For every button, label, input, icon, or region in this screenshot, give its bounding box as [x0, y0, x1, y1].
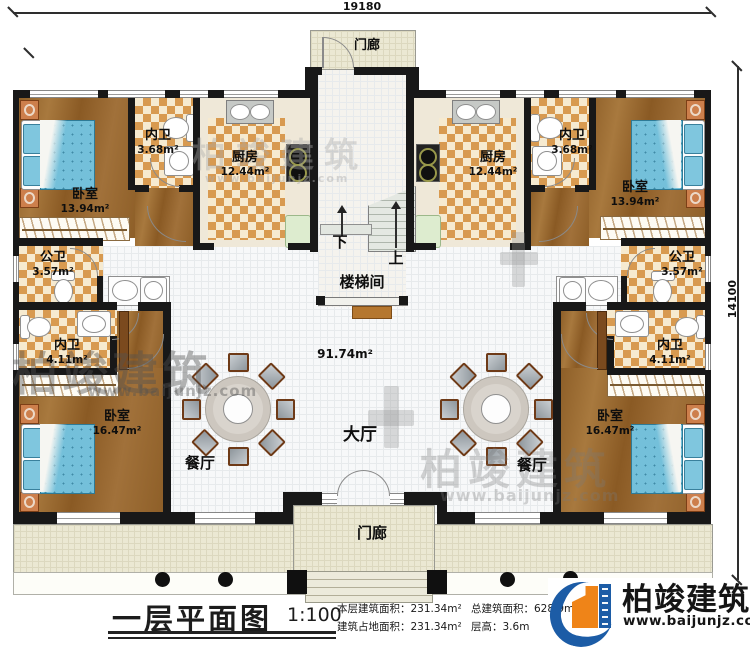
toilet-icon [653, 279, 672, 304]
watermark-logo-icon [500, 252, 538, 265]
stair-hall-floor [318, 67, 406, 307]
room-label-bedroom-bottom-right: 卧室 16.47m² [570, 410, 650, 437]
room-label-bath-public-left: 公卫 3.57m² [23, 251, 83, 278]
kitchen-left-floor [208, 118, 285, 240]
wall [437, 492, 447, 524]
window [705, 344, 711, 370]
room-label-dining-left: 餐厅 [172, 455, 228, 472]
wall [575, 185, 589, 192]
wall [553, 302, 561, 514]
wall [414, 243, 436, 250]
stat-floor-area: 本层建筑面积：231.34m² [337, 601, 462, 616]
stairs-up-arrowhead [391, 196, 401, 209]
room-area: 12.44m² [453, 166, 533, 178]
room-area: 16.47m² [77, 425, 157, 437]
room-label-bath-public-right: 公卫 3.57m² [652, 251, 712, 278]
dining-chair [228, 353, 249, 372]
room-name: 餐厅 [172, 455, 228, 472]
washer-drum-icon [563, 281, 582, 300]
wall [667, 512, 711, 524]
rail-post [316, 296, 325, 305]
dining-table-top [481, 394, 511, 424]
entry-steps [305, 571, 433, 603]
porch-column [427, 570, 447, 594]
room-area: 12.44m² [205, 166, 285, 178]
porch-column-dot [155, 572, 170, 587]
room-area: 3.57m² [23, 266, 83, 278]
wall [13, 302, 117, 310]
room-name: 卧室 [45, 188, 125, 203]
nightstand [686, 492, 705, 512]
wall [531, 185, 545, 192]
window [224, 90, 278, 98]
wall [621, 238, 711, 246]
burner-icon [289, 164, 307, 182]
dimension-height-label: 14100 [726, 280, 739, 318]
wall [13, 368, 117, 375]
room-label-hall: 大厅 [330, 426, 390, 446]
wall [607, 368, 711, 375]
room-label-ensuite-top-left: 内卫 3.68m² [128, 129, 188, 156]
stat-value: 231.34m² [411, 603, 462, 615]
room-label-bedroom-top-left: 卧室 13.94m² [45, 188, 125, 215]
stat-label: 本层建筑面积： [337, 603, 411, 615]
room-label-bedroom-top-right: 卧室 13.94m² [595, 181, 675, 208]
dimension-line-right [737, 66, 739, 580]
room-name: 内卫 [542, 129, 602, 144]
wall [621, 276, 627, 304]
wall [110, 336, 117, 371]
room-name: 厨房 [205, 151, 285, 166]
wall [13, 238, 103, 246]
rail-post [399, 296, 408, 305]
window [516, 90, 544, 98]
brand-url: www.baijunjz.com [623, 613, 750, 629]
nightstand [20, 404, 39, 424]
window [626, 90, 694, 98]
wall [135, 185, 149, 192]
stat-value: 3.6m [503, 621, 530, 633]
pillow [684, 460, 703, 490]
wall [120, 512, 195, 524]
room-area: 4.11m² [37, 354, 97, 366]
porch-column-dot [500, 572, 515, 587]
dining-table-top [223, 394, 253, 424]
room-name: 内卫 [640, 339, 700, 354]
window-sidelight [322, 493, 337, 504]
room-label-stairwell: 楼梯间 [322, 274, 402, 291]
watermark-logo-icon [368, 410, 414, 426]
vanity-sink-icon [588, 280, 614, 301]
nightstand [686, 100, 705, 120]
room-name: 公卫 [652, 251, 712, 266]
stat-label: 层高： [471, 621, 503, 633]
room-name: 内卫 [37, 339, 97, 354]
room-label-kitchen-left: 厨房 12.44m² [205, 151, 285, 178]
wall [288, 243, 310, 250]
room-name: 公卫 [23, 251, 83, 266]
toilet-icon [27, 317, 51, 337]
floor-plan-canvas: 门廊 卧室 13.94m² 内卫 3.68m² 厨房 12.44m² 公卫 3.… [0, 0, 750, 648]
stat-height: 层高：3.6m [471, 619, 529, 634]
wall [310, 75, 318, 252]
room-area: 13.94m² [45, 203, 125, 215]
wall [179, 185, 193, 192]
nightstand [686, 188, 705, 208]
room-name: 门廊 [322, 39, 412, 54]
bed-sheet [631, 120, 681, 188]
room-area: 3.68m² [542, 144, 602, 156]
window [195, 512, 255, 524]
wall [13, 512, 57, 524]
kitchen-sink-bowl [476, 104, 496, 120]
window [57, 512, 120, 524]
room-name: 餐厅 [504, 457, 560, 474]
room-area: 4.11m² [640, 354, 700, 366]
room-label-porch-bottom: 门廊 [330, 525, 414, 542]
room-name: 卧室 [77, 410, 157, 425]
dining-chair [228, 447, 249, 466]
title-underline [108, 631, 336, 634]
title-underline-thin [108, 637, 336, 639]
window [108, 90, 165, 98]
nightstand [20, 188, 39, 208]
stat-label: 建筑占地面积： [337, 621, 411, 633]
wall [540, 512, 604, 524]
wardrobe-top-right [600, 216, 707, 240]
room-name: 内卫 [128, 129, 188, 144]
stairs-up-text: 上 [386, 250, 406, 267]
door-leaf [597, 311, 607, 370]
porch-column [287, 570, 307, 594]
room-name: 楼梯间 [322, 274, 402, 291]
wall [607, 336, 614, 371]
scale-label: 1:100 [287, 604, 342, 626]
dining-chair [440, 399, 459, 420]
vanity-sink-icon [112, 280, 138, 301]
nightstand [20, 100, 39, 120]
dimension-width-label: 19180 [317, 0, 407, 13]
dining-chair [276, 399, 295, 420]
room-label-ensuite-bottom-right: 内卫 4.11m² [640, 339, 700, 366]
room-area: 3.68m² [128, 144, 188, 156]
washer-drum-icon [144, 281, 163, 300]
porch-column-dot [218, 572, 233, 587]
room-name: 卧室 [595, 181, 675, 196]
stat-label: 总建筑面积： [471, 603, 534, 615]
kitchen-sink-bowl [250, 104, 270, 120]
stairs-down-label: 下 [330, 234, 350, 251]
room-name: 大厅 [330, 426, 390, 446]
dining-chair [182, 399, 201, 420]
pillow [684, 156, 703, 186]
room-label-kitchen-right: 厨房 12.44m² [453, 151, 533, 178]
burner-icon [419, 164, 437, 182]
wall [97, 276, 103, 304]
room-label-dining-right: 餐厅 [504, 457, 560, 474]
room-label-porch-top: 门廊 [322, 39, 412, 54]
room-name: 厨房 [453, 151, 533, 166]
toilet-icon [54, 279, 73, 304]
nightstand [686, 404, 705, 424]
window [13, 344, 19, 370]
window [180, 90, 208, 98]
stair-hall-rail [318, 297, 408, 306]
window [13, 256, 19, 282]
room-label-ensuite-top-right: 内卫 3.68m² [542, 129, 602, 156]
kitchen-right-floor [439, 118, 516, 240]
wall [200, 243, 214, 250]
stairs-down-text: 下 [330, 234, 350, 251]
bed-sheet [40, 120, 93, 188]
wall [283, 492, 293, 524]
stairs-up-arrow [395, 206, 397, 248]
room-label-ensuite-bottom-left: 内卫 4.11m² [37, 339, 97, 366]
toilet-icon [675, 317, 699, 337]
room-area: 13.94m² [595, 196, 675, 208]
pillow [684, 124, 703, 154]
room-area: 3.57m² [652, 266, 712, 278]
pillow [684, 428, 703, 458]
stat-value: 231.34m² [411, 621, 462, 633]
stairs-down-arrowhead [337, 200, 347, 213]
kitchen-sink-bowl [230, 104, 250, 120]
wall [406, 75, 414, 252]
wall [310, 67, 322, 75]
brand-logo-tower-icon [599, 584, 611, 628]
window [30, 90, 98, 98]
nightstand [20, 492, 39, 512]
wall [193, 98, 200, 250]
wall [607, 302, 711, 310]
room-area: 91.74m² [305, 348, 385, 362]
window [475, 512, 540, 524]
stat-footprint: 建筑占地面积：231.34m² [337, 619, 462, 634]
window [559, 90, 616, 98]
room-name: 卧室 [570, 410, 650, 425]
window-sidelight [390, 493, 404, 504]
stairs-up-label: 上 [386, 250, 406, 267]
kitchen-sink-bowl [456, 104, 476, 120]
sink-icon [620, 315, 644, 333]
wall [354, 67, 414, 75]
room-label-bedroom-bottom-left: 卧室 16.47m² [77, 410, 157, 437]
dimension-tick [23, 47, 34, 58]
sink-icon [82, 315, 106, 333]
dining-chair [486, 353, 507, 372]
dining-chair [534, 399, 553, 420]
window [446, 90, 500, 98]
doormat [352, 306, 392, 319]
room-name: 门廊 [330, 525, 414, 542]
hall-area-label: 91.74m² [305, 348, 385, 362]
window [604, 512, 667, 524]
room-area: 16.47m² [570, 425, 650, 437]
wall [163, 302, 171, 514]
